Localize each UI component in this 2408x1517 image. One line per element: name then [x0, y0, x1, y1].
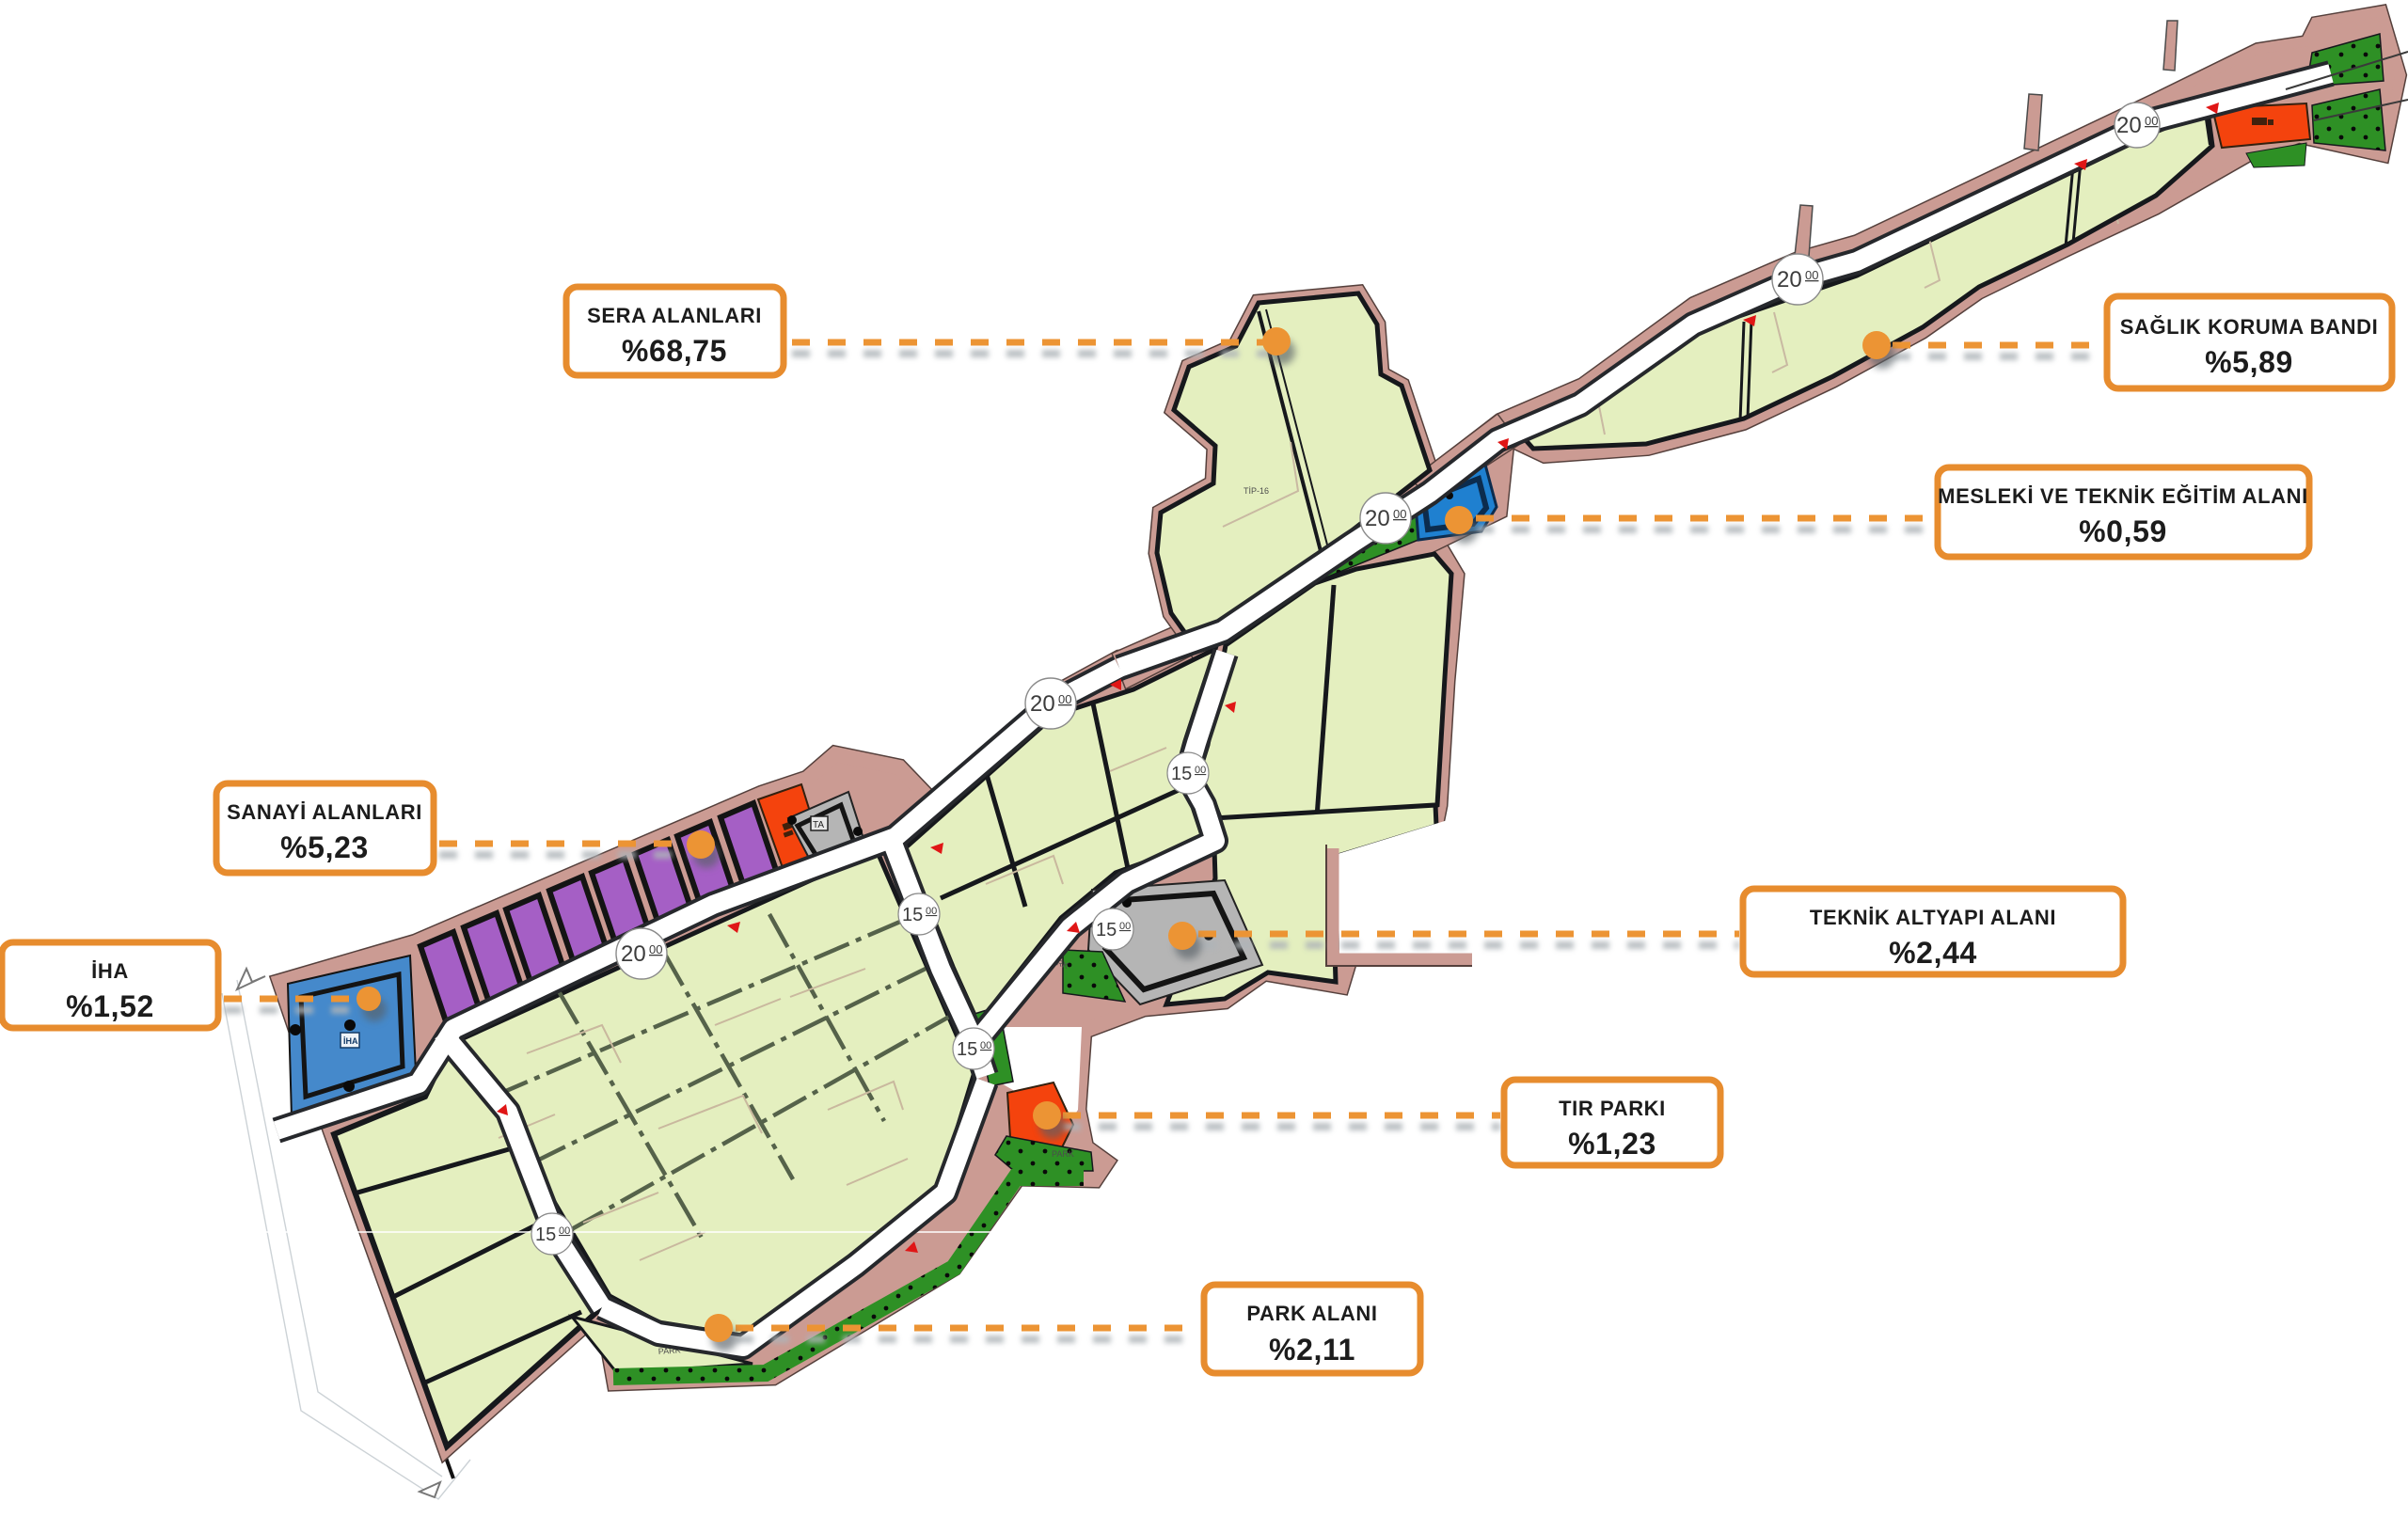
svg-text:15: 15 [1096, 920, 1117, 940]
svg-text:15: 15 [957, 1039, 977, 1060]
svg-text:20: 20 [1030, 691, 1055, 717]
svg-text:00: 00 [1058, 692, 1071, 706]
svg-text:20: 20 [2116, 113, 2142, 138]
svg-text:%1,23: %1,23 [1568, 1127, 1656, 1161]
svg-text:15: 15 [902, 905, 923, 925]
svg-text:00: 00 [2145, 114, 2158, 128]
svg-text:TA: TA [813, 820, 824, 830]
svg-text:00: 00 [1805, 268, 1818, 282]
svg-text:MESLEKİ VE TEKNİK EĞİTİM ALANI: MESLEKİ VE TEKNİK EĞİTİM ALANI [1938, 484, 2308, 508]
svg-text:%5,23: %5,23 [280, 830, 369, 864]
svg-text:20: 20 [621, 941, 646, 967]
svg-text:00: 00 [980, 1040, 991, 1051]
svg-text:20: 20 [1365, 506, 1390, 531]
svg-text:00: 00 [926, 906, 937, 917]
svg-text:İHA: İHA [91, 959, 129, 983]
svg-text:TİP-16: TİP-16 [1244, 486, 1269, 496]
svg-text:15: 15 [535, 1225, 556, 1245]
svg-text:00: 00 [559, 1225, 570, 1237]
svg-text:İHA: İHA [343, 1036, 358, 1046]
svg-text:%2,44: %2,44 [1889, 936, 1977, 970]
svg-text:%5,89: %5,89 [2205, 345, 2293, 379]
svg-text:TIR PARKI: TIR PARKI [1559, 1097, 1666, 1120]
svg-text:PARK: PARK [1052, 1149, 1074, 1159]
svg-text:%2,11: %2,11 [1269, 1333, 1355, 1367]
svg-text:%68,75: %68,75 [622, 334, 727, 368]
svg-text:20: 20 [1777, 267, 1802, 292]
svg-text:00: 00 [1393, 507, 1406, 521]
svg-text:00: 00 [1119, 921, 1131, 932]
svg-text:TEKNİK ALTYAPI ALANI: TEKNİK ALTYAPI ALANI [1810, 906, 2056, 929]
svg-text:PARK ALANI: PARK ALANI [1246, 1302, 1377, 1325]
svg-text:SANAYİ ALANLARI: SANAYİ ALANLARI [227, 800, 422, 824]
svg-text:00: 00 [1195, 765, 1206, 776]
svg-text:%0,59: %0,59 [2079, 514, 2167, 548]
svg-text:SAĞLIK KORUMA BANDI: SAĞLIK KORUMA BANDI [2120, 315, 2379, 339]
svg-text:15: 15 [1171, 764, 1192, 784]
svg-text:%1,52: %1,52 [66, 989, 154, 1023]
svg-text:SERA ALANLARI: SERA ALANLARI [587, 304, 762, 327]
svg-text:00: 00 [649, 942, 662, 956]
